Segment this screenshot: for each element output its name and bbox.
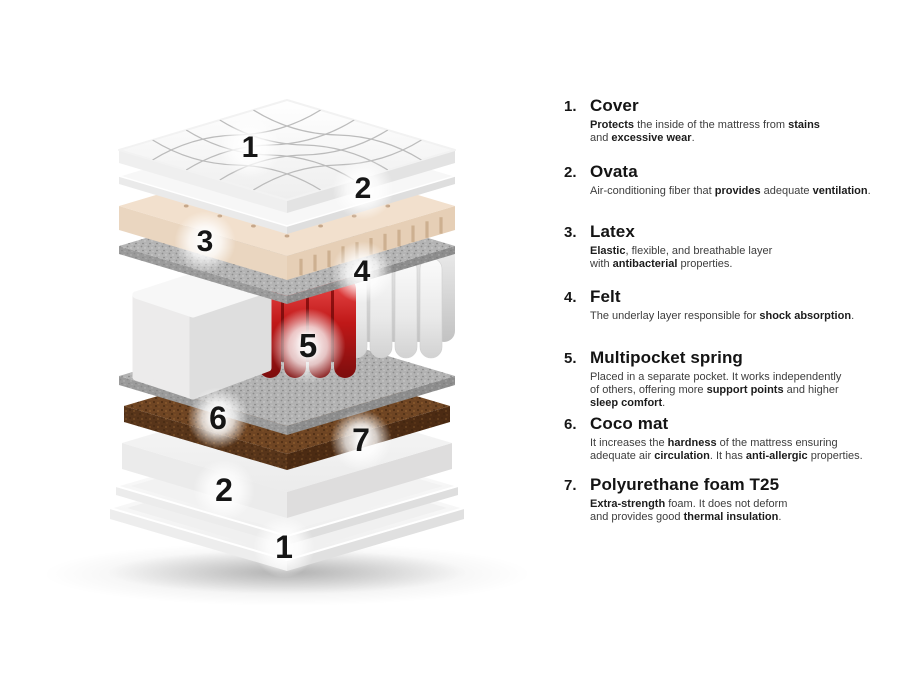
legend-number: 4.: [564, 289, 577, 306]
legend-description: Elastic, flexible, and breathable layer …: [590, 245, 897, 271]
legend-title: Cover: [590, 96, 897, 116]
legend-item-cover: 1. Cover Protects the inside of the matt…: [562, 96, 897, 145]
legend-number: 5.: [564, 350, 577, 367]
legend-item-multipocket-spring: 5. Multipocket spring Placed in a separa…: [562, 348, 897, 410]
legend-description: It increases the hardness of the mattres…: [590, 437, 897, 463]
legend-description: The underlay layer responsible for shock…: [590, 310, 897, 323]
legend-title: Ovata: [590, 162, 897, 182]
legend-number: 7.: [564, 477, 577, 494]
legend-number: 3.: [564, 224, 577, 241]
legend-number: 1.: [564, 98, 577, 115]
legend-title: Felt: [590, 287, 897, 307]
legend-item-coco-mat: 6. Coco mat It increases the hardness of…: [562, 414, 897, 463]
legend-title: Latex: [590, 222, 897, 242]
legend-description: Placed in a separate pocket. It works in…: [590, 371, 897, 410]
legend-item-latex: 3. Latex Elastic, flexible, and breathab…: [562, 222, 897, 271]
mattress-layers-infographic: 1 2 3 4 5 6 7 2 1 1. Cover Protects the …: [0, 0, 900, 675]
legend-description: Extra-strength foam. It does not deform …: [590, 498, 897, 524]
legend-number: 6.: [564, 416, 577, 433]
legend-title: Polyurethane foam T25: [590, 475, 897, 495]
legend-description: Air-conditioning fiber that provides ade…: [590, 185, 897, 198]
legend-item-felt: 4. Felt The underlay layer responsible f…: [562, 287, 897, 323]
legend-item-polyurethane-foam: 7. Polyurethane foam T25 Extra-strength …: [562, 475, 897, 524]
legend-title: Coco mat: [590, 414, 897, 434]
layer-legend: 1. Cover Protects the inside of the matt…: [562, 0, 897, 675]
mattress-exploded-view: [0, 0, 540, 675]
legend-description: Protects the inside of the mattress from…: [590, 119, 897, 145]
legend-title: Multipocket spring: [590, 348, 897, 368]
mattress-diagram: 1 2 3 4 5 6 7 2 1: [0, 0, 540, 675]
legend-number: 2.: [564, 164, 577, 181]
legend-item-ovata: 2. Ovata Air-conditioning fiber that pro…: [562, 162, 897, 198]
